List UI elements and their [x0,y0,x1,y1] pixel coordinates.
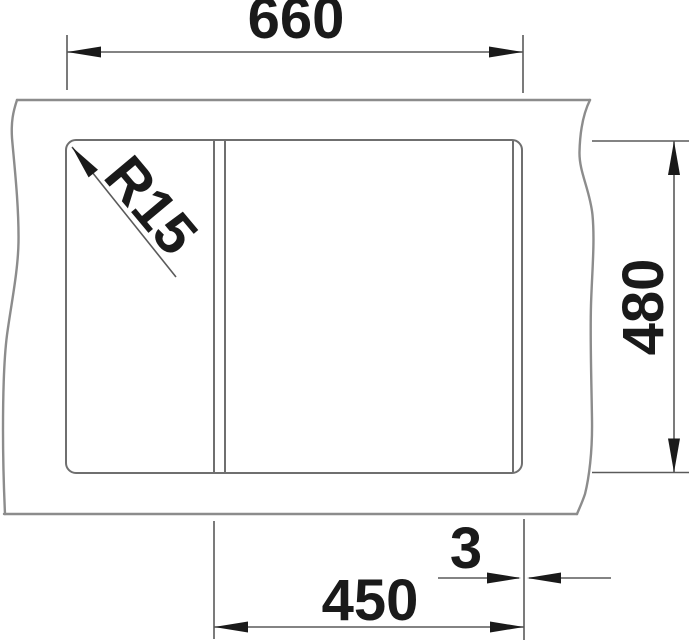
corner-radius-callout: R15 [72,144,210,277]
bottom-width-label: 450 [322,568,419,633]
dimension-top-width: 660 [67,0,523,93]
arrow-right-icon [490,622,524,633]
arrow-left-icon [67,47,101,58]
arrow-left-icon [527,573,561,584]
arrow-down-icon [668,439,680,473]
bottom-offset-label: 3 [450,516,482,581]
dimension-drawing: 660 480 450 3 [0,0,689,640]
right-height-label: 480 [611,259,676,356]
right-break-line [577,100,593,514]
arrow-right-icon [487,573,521,584]
arrow-left-icon [214,622,248,633]
corner-radius-label: R15 [92,144,210,267]
arrow-up-icon [668,141,680,175]
top-width-label: 660 [248,0,345,51]
countertop-outline [3,100,593,514]
arrow-right-icon [489,47,523,58]
drawing-svg: 660 480 450 3 [0,0,689,640]
arrow-up-left-icon [72,147,98,177]
dimension-right-height: 480 [592,141,689,473]
left-break-line [3,100,19,514]
